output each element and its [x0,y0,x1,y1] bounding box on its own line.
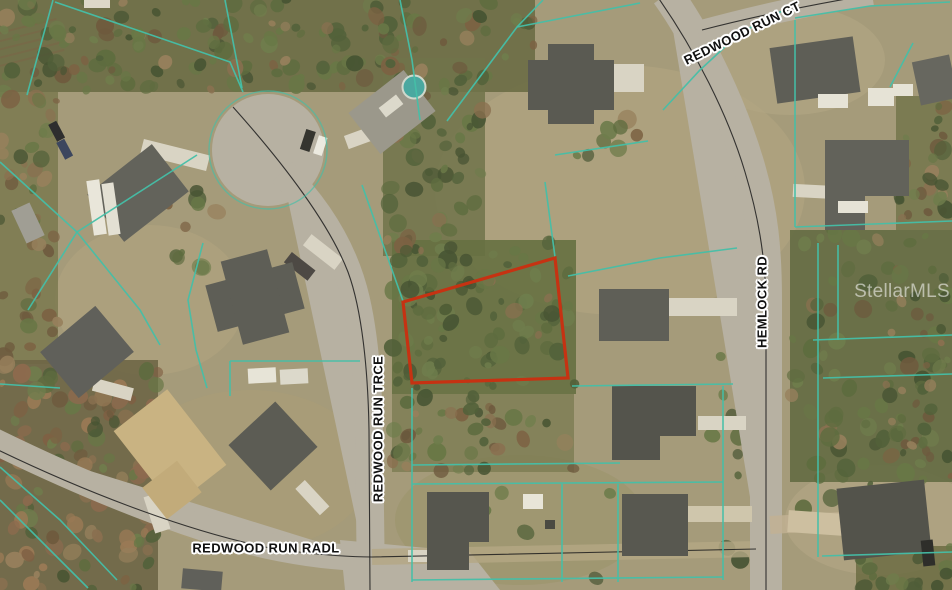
street-label-redwood-run-radl: REDWOOD RUN RADL [192,541,339,556]
house-roof [836,480,931,561]
shed [545,520,555,529]
structure [84,0,110,8]
house-roof [770,36,861,103]
house-roof [622,494,688,556]
patio-deck [868,88,894,106]
patio-deck [818,94,848,108]
shed [523,494,543,509]
street-label-redwood-run-trce: REDWOOD RUN TRCE [371,356,386,503]
satellite-map-image [0,0,952,590]
house-roof [825,140,865,230]
stellar-mls-watermark: StellarMLS [854,281,950,303]
street-label-hemlock-rd: HEMLOCK RD [755,256,770,348]
patio-deck [838,201,868,213]
house-roof [612,386,660,460]
camper [280,368,309,384]
house-roof [427,520,469,570]
house-roof [599,289,669,341]
patio-deck [893,84,913,96]
mls-aerial-parcel-map: REDWOOD RUN CT REDWOOD RUN TRCE HEMLOCK … [0,0,952,590]
house-roof [181,568,223,590]
house-roof [548,44,594,124]
camper [248,367,277,383]
